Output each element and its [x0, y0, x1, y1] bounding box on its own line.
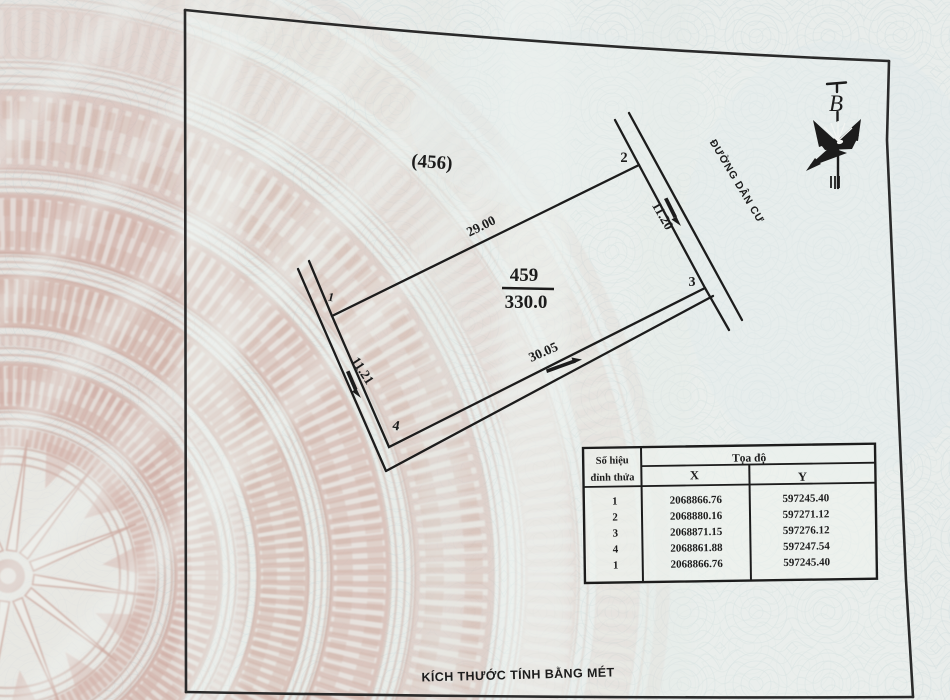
svg-text:Tọa độ: Tọa độ — [732, 452, 767, 465]
svg-text:2068866.76: 2068866.76 — [671, 558, 724, 571]
svg-text:B: B — [829, 91, 843, 116]
svg-text:459: 459 — [510, 265, 539, 286]
svg-text:Số hiệu: Số hiệu — [596, 455, 629, 466]
svg-text:597276.12: 597276.12 — [783, 524, 830, 537]
svg-text:4: 4 — [613, 543, 619, 555]
svg-text:(456): (456) — [411, 151, 454, 175]
svg-text:Y: Y — [798, 470, 807, 484]
svg-text:đỉnh thửa: đỉnh thửa — [590, 472, 635, 484]
svg-text:597247.54: 597247.54 — [783, 540, 830, 553]
svg-text:2068871.15: 2068871.15 — [670, 526, 723, 539]
svg-text:1: 1 — [613, 559, 619, 571]
svg-text:X: X — [690, 468, 699, 482]
svg-text:2068861.88: 2068861.88 — [670, 542, 723, 555]
svg-text:597271.12: 597271.12 — [783, 508, 830, 521]
svg-text:597245.40: 597245.40 — [782, 492, 829, 505]
svg-text:3: 3 — [689, 275, 696, 290]
svg-text:1: 1 — [612, 495, 618, 507]
svg-text:330.0: 330.0 — [505, 292, 548, 313]
svg-text:2: 2 — [620, 150, 627, 166]
svg-text:3: 3 — [612, 527, 618, 539]
svg-text:597245.40: 597245.40 — [783, 556, 830, 569]
svg-text:2068866.76: 2068866.76 — [670, 494, 723, 507]
svg-text:2068880.16: 2068880.16 — [670, 510, 723, 523]
svg-text:2: 2 — [612, 511, 618, 523]
